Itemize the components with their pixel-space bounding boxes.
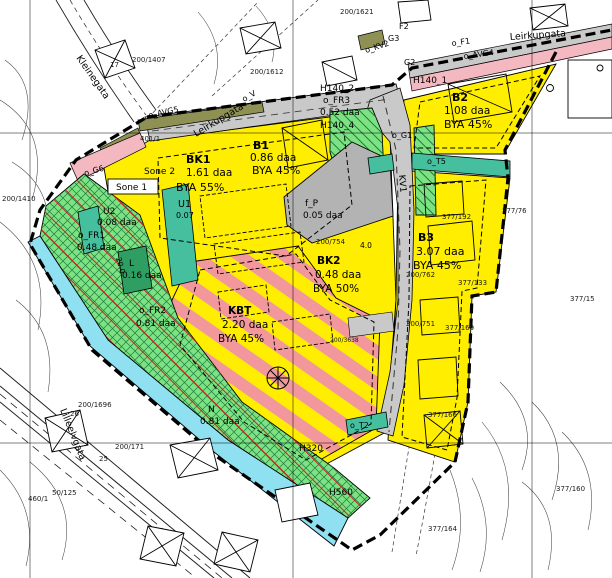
label-parcel-460-1: 460/1	[28, 495, 48, 503]
label-hazard-h320: H320	[299, 444, 323, 454]
label-zone-b1-area: 0.86 daa	[250, 152, 296, 164]
label-dim-4: 4.0	[360, 241, 372, 250]
label-strip-g3: G3	[388, 34, 399, 43]
strip-t5-west-stub	[368, 154, 394, 174]
label-zone-u2-code: U2	[103, 207, 115, 217]
label-parcel-200-1407: 200/1407	[132, 56, 166, 64]
label-zone-b3-area: 3.07 daa	[416, 245, 464, 258]
label-house-number-25: 25	[99, 455, 108, 463]
label-zone-bk1-area: 1.61 daa	[186, 167, 232, 179]
label-house-number-26: 26	[70, 410, 79, 418]
label-zone-b1-code: B1	[253, 139, 269, 152]
play-spokes	[267, 367, 289, 389]
label-strip-g1: o_G1	[392, 131, 412, 140]
zoning-map-canvas: LeirkupgataLeirkupgataKleinegataLilleelv…	[0, 0, 612, 578]
label-parcel-377-15: 377/15	[570, 295, 595, 303]
label-parcel-377-166: 377/166	[428, 411, 458, 419]
house	[568, 60, 612, 118]
label-zone-n-code: N	[208, 405, 215, 415]
label-zone-fr2-code: o_FR2	[139, 306, 166, 316]
label-house-number-17: 17	[110, 61, 119, 69]
label-zone-l-area: 0.16 daa	[122, 271, 162, 281]
label-hazard-h140-1: H140_1	[413, 76, 447, 86]
house	[275, 483, 318, 522]
label-zone-bk1-sone2: Sone 2	[144, 167, 175, 177]
label-zone-b3-code: B3	[418, 231, 434, 244]
label-parcel-200-762: 200/762	[406, 271, 435, 279]
label-parcel-200-1621: 200/1621	[340, 8, 374, 16]
label-hazard-h140-4: H140_4	[320, 121, 354, 131]
label-zone-kbt-area: 2.20 daa	[222, 319, 268, 331]
house	[140, 526, 184, 566]
label-hazard-h560: H560	[329, 488, 353, 498]
label-strip-f2: F2	[399, 22, 409, 31]
label-zone-u2-area: 0.08 daa	[97, 218, 137, 228]
label-zone-fr2-area: 0.81 daa	[136, 319, 176, 329]
label-zone-b1-bya: BYA 45%	[252, 164, 300, 177]
label-parcel-377-76: 377/76	[502, 207, 527, 215]
label-parcel-200-3638: 200/3638	[330, 337, 359, 344]
label-zone-b2-bya: BYA 45%	[444, 118, 492, 131]
label-parcel-200-1410: 200/1410	[2, 195, 36, 203]
label-parcel-401-1: 401/1	[140, 135, 160, 143]
zoning-map: LeirkupgataLeirkupgataKleinegataLilleelv…	[0, 0, 612, 578]
label-strip-t2: o_T2	[350, 421, 369, 430]
label-zone-fr1-area: 0.48 daa	[77, 243, 117, 253]
label-zone-bk2-bya: BYA 50%	[313, 283, 359, 295]
label-zone-bk2-code: BK2	[317, 255, 340, 267]
label-hazard-h140-2: H140_2	[320, 84, 354, 94]
label-zone-fr3-code: o_FR3	[323, 96, 350, 106]
play-area-symbol	[267, 367, 289, 389]
label-strip-g2: G2	[404, 58, 415, 67]
label-zone-fr3-area: 0.52 daa	[320, 108, 360, 118]
label-zone-bk1-code: BK1	[186, 153, 211, 166]
label-zone-bk2-area: 0.48 daa	[315, 269, 361, 281]
label-parcel-377-192: 377/192	[442, 213, 471, 221]
label-parcel-200-754: 200/754	[316, 238, 346, 246]
label-parcel-200-171: 200/171	[115, 443, 144, 451]
label-zone-kbt-bya: BYA 45%	[218, 333, 264, 345]
label-parcel-377-133: 377/133	[458, 279, 487, 287]
label-zone-n-area: 0.81 daa	[200, 417, 240, 427]
label-parcel-200-751: 200/751	[406, 320, 435, 328]
tree-symbol	[597, 65, 603, 71]
house	[398, 0, 431, 23]
house	[240, 22, 281, 54]
house	[322, 56, 357, 86]
label-zone-fr1-code: o_FR1	[78, 231, 105, 241]
label-parcel-50-125: 50/125	[52, 489, 77, 497]
label-road-kv1: KV1	[396, 174, 408, 193]
label-zone-fp-code: f_P	[305, 199, 319, 209]
label-zone-b2-code: B2	[452, 91, 468, 104]
label-parcel-200-1696: 200/1696	[78, 401, 112, 409]
label-sone1-label: Sone 1	[116, 183, 147, 193]
label-parcel-377-160: 377/160	[556, 485, 585, 493]
label-parcel-377-169: 377/169	[445, 324, 474, 332]
label-zone-fp-area: 0.05 daa	[303, 211, 343, 221]
label-parcel-377-164: 377/164	[428, 525, 458, 533]
label-zone-kbt-code: KBT	[228, 305, 252, 317]
house	[530, 4, 568, 30]
tree-symbol	[547, 85, 554, 92]
label-strip-t5: o_T5	[427, 157, 446, 166]
label-zone-bk1-bya: BYA 55%	[176, 181, 224, 194]
label-zone-u1-area: 0.07	[176, 211, 194, 220]
label-parcel-200-1612: 200/1612	[250, 68, 284, 76]
label-zone-u1-code: U1	[178, 199, 191, 210]
label-zone-b2-area: 1.08 daa	[444, 105, 490, 117]
label-zone-l-code: L	[129, 259, 134, 269]
